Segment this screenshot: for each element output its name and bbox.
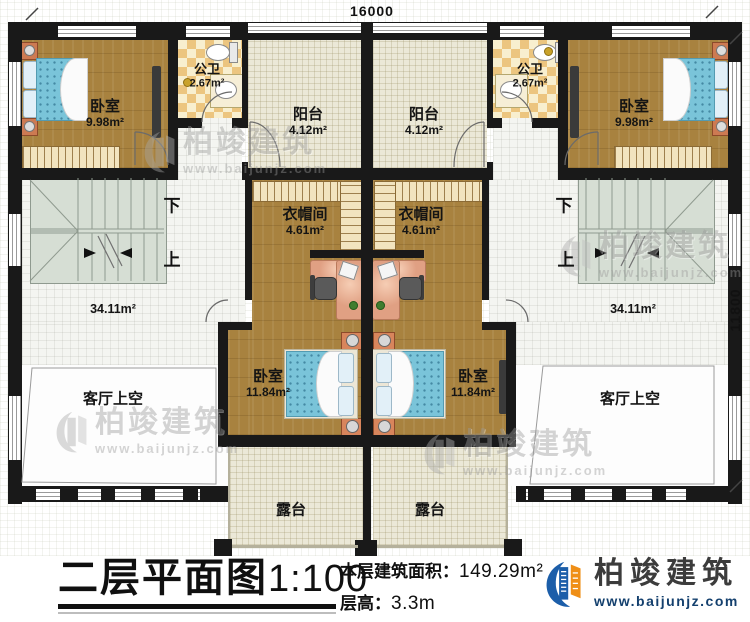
stair-down-label: 下 bbox=[164, 192, 181, 217]
pillow bbox=[376, 386, 392, 416]
room-label-terrace-left: 露台 bbox=[276, 503, 306, 520]
room-area: 9.98m² bbox=[615, 116, 653, 129]
bed-blanket bbox=[60, 58, 88, 121]
tv-cabinet bbox=[152, 66, 161, 138]
window bbox=[9, 62, 21, 126]
terrace-rail bbox=[377, 545, 504, 548]
stairs-left bbox=[30, 178, 167, 284]
room-name: 衣帽间 bbox=[398, 207, 443, 224]
terrace-column bbox=[355, 540, 377, 557]
wall-cloakL-south bbox=[310, 250, 361, 258]
cloak-hangers bbox=[252, 181, 342, 202]
floor-area-value: 149.29m² bbox=[459, 561, 543, 582]
room-area: 4.12m² bbox=[405, 124, 443, 137]
cloak-shelf bbox=[340, 181, 362, 251]
room-name: 客厅上空 bbox=[83, 392, 143, 409]
column bbox=[652, 487, 666, 501]
room-label-cloak-left: 衣帽间 4.61m² bbox=[282, 207, 327, 237]
room-label-terrace-right: 露台 bbox=[415, 503, 445, 520]
room-label-void-right: 客厅上空 bbox=[600, 392, 660, 409]
area-label-hall-left: 34.11m² bbox=[90, 302, 136, 316]
room-name: 客厅上空 bbox=[600, 392, 660, 409]
stool bbox=[341, 418, 363, 436]
dimension-height: 11800 bbox=[727, 288, 743, 331]
wall-cloakR-south bbox=[373, 250, 424, 258]
room-label-bedroom-topright: 卧室 9.98m² bbox=[615, 99, 653, 129]
room-label-bedroom-bottomleft: 卧室 11.84m² bbox=[246, 369, 290, 399]
room-name: 公卫 bbox=[513, 63, 548, 78]
balcony-right-floor bbox=[373, 30, 487, 168]
wall-bedroomTL-east bbox=[168, 40, 178, 180]
company-logo: 柏竣建筑 www.baijunjz.com bbox=[540, 558, 739, 610]
room-area: 4.61m² bbox=[398, 224, 443, 237]
floor-height-label: 层高： bbox=[340, 594, 391, 613]
window bbox=[729, 214, 741, 266]
cloak-hangers bbox=[394, 181, 483, 202]
wall-center bbox=[361, 22, 373, 447]
chair bbox=[314, 277, 337, 300]
column bbox=[612, 487, 626, 501]
area-label-hall-right: 34.11m² bbox=[610, 302, 656, 316]
wall-bedroomBR-east bbox=[506, 322, 516, 447]
floor-area-row: 本层建筑面积：149.29m² bbox=[340, 562, 543, 581]
title-underline-thin bbox=[58, 612, 336, 614]
room-label-balcony-right: 阳台 4.12m² bbox=[405, 107, 443, 137]
plan-title: 二层平面图1:100 bbox=[58, 558, 368, 598]
title-underline-thick bbox=[58, 604, 336, 609]
balcony-left-railing bbox=[248, 23, 361, 33]
wall-bathL-south-b bbox=[232, 118, 248, 128]
window bbox=[729, 396, 741, 460]
window bbox=[9, 214, 21, 266]
room-area: 34.11m² bbox=[90, 302, 136, 316]
room-area: 34.11m² bbox=[610, 302, 656, 316]
wardrobe-hangers bbox=[614, 146, 712, 169]
wall-cloakL-west bbox=[245, 180, 252, 300]
floor-height-row: 层高：3.3m bbox=[340, 594, 543, 613]
wall-bedroomTL-south bbox=[22, 168, 178, 180]
wardrobe-hangers bbox=[22, 146, 120, 169]
room-name: 衣帽间 bbox=[282, 207, 327, 224]
window bbox=[612, 26, 690, 37]
room-name: 阳台 bbox=[405, 107, 443, 124]
room-name: 卧室 bbox=[451, 369, 495, 386]
column bbox=[183, 487, 198, 501]
room-area: 11.84m² bbox=[451, 386, 495, 399]
room-label-bath-right: 公卫 2.67m² bbox=[513, 63, 548, 90]
balcony-right-railing bbox=[373, 23, 487, 33]
stairs-right bbox=[578, 178, 715, 284]
wall-cloakR-east bbox=[482, 180, 489, 300]
room-area: 2.67m² bbox=[190, 77, 225, 89]
terrace-left-floor bbox=[228, 447, 363, 545]
room-area: 4.61m² bbox=[282, 224, 327, 237]
company-logo-text: 柏竣建筑 www.baijunjz.com bbox=[594, 559, 739, 609]
plant-icon bbox=[376, 301, 385, 310]
room-name: 露台 bbox=[276, 503, 306, 520]
plan-info: 本层建筑面积：149.29m² 层高：3.3m bbox=[340, 562, 543, 613]
void-right-floor bbox=[506, 365, 728, 486]
room-name: 公卫 bbox=[190, 63, 225, 78]
stool bbox=[373, 418, 395, 436]
wall-center-terrace bbox=[363, 447, 371, 542]
wall-bedroomBR-south bbox=[373, 435, 506, 447]
floor-drain-icon bbox=[544, 47, 553, 56]
cloak-shelf bbox=[374, 181, 396, 251]
column bbox=[60, 487, 78, 501]
room-area: 2.67m² bbox=[513, 77, 548, 89]
stair-down-label: 下 bbox=[556, 192, 573, 217]
wall-balconyR-east-b bbox=[487, 162, 493, 180]
room-label-balcony-left: 阳台 4.12m² bbox=[289, 107, 327, 137]
tv-cabinet bbox=[570, 66, 579, 138]
room-name: 卧室 bbox=[246, 369, 290, 386]
plan-title-text: 二层平面图 bbox=[58, 556, 268, 600]
wall-bathL-south-a bbox=[168, 118, 202, 128]
wall-bedroomBL-south bbox=[228, 435, 361, 447]
room-label-bedroom-bottomright: 卧室 11.84m² bbox=[451, 369, 495, 399]
column bbox=[141, 487, 155, 501]
toilet-tank bbox=[229, 42, 238, 63]
title-bar: 二层平面图1:100 本层建筑面积：149.29m² 层高：3.3m 柏竣建筑 … bbox=[0, 556, 750, 622]
room-label-cloak-right: 衣帽间 4.61m² bbox=[398, 207, 443, 237]
hall-right-lower-floor bbox=[516, 322, 728, 365]
floorplan-canvas: 柏竣建筑 www.baijunjz.com 柏竣建筑 www.baijunjz.… bbox=[0, 0, 750, 622]
window bbox=[186, 26, 230, 37]
room-label-bath-left: 公卫 2.67m² bbox=[190, 63, 225, 90]
room-name: 阳台 bbox=[289, 107, 327, 124]
terrace-column bbox=[504, 539, 522, 556]
toilet-icon bbox=[206, 44, 230, 61]
column bbox=[571, 487, 585, 501]
plant-icon bbox=[349, 301, 358, 310]
pillow bbox=[713, 61, 728, 89]
company-url: www.baijunjz.com bbox=[594, 593, 739, 609]
dimension-width: 16000 bbox=[350, 3, 394, 19]
room-name: 卧室 bbox=[615, 99, 653, 116]
wall-balconyR-south bbox=[373, 168, 487, 180]
terrace-right-floor bbox=[373, 447, 508, 545]
room-label-bedroom-topleft: 卧室 9.98m² bbox=[86, 99, 124, 129]
wall-bedroomTR-west bbox=[558, 40, 568, 180]
pillow bbox=[338, 386, 354, 416]
room-area: 4.12m² bbox=[289, 124, 327, 137]
wall-balconyL-west-a bbox=[242, 22, 248, 122]
wall-bathR-south-a bbox=[487, 118, 502, 128]
wall-bedroomTR-south bbox=[568, 168, 728, 180]
void-left-floor bbox=[22, 365, 228, 486]
terrace-rail bbox=[232, 545, 358, 548]
pillow bbox=[376, 353, 392, 383]
pillow bbox=[338, 353, 354, 383]
wall-balconyR-east-a bbox=[487, 22, 493, 122]
company-logo-icon bbox=[540, 558, 586, 610]
wall-balconyL-south bbox=[248, 168, 361, 180]
floor-area-label: 本层建筑面积： bbox=[340, 562, 459, 581]
room-area: 11.84m² bbox=[246, 386, 290, 399]
stair-up-label: 上 bbox=[558, 246, 575, 271]
column bbox=[528, 487, 544, 501]
stair-up-label: 上 bbox=[164, 246, 181, 271]
column bbox=[101, 487, 115, 501]
wall-bedroomBL-west bbox=[218, 322, 228, 447]
room-name: 露台 bbox=[415, 503, 445, 520]
company-name: 柏竣建筑 bbox=[594, 559, 739, 589]
chair bbox=[399, 277, 422, 300]
room-area: 9.98m² bbox=[86, 116, 124, 129]
room-label-void-left: 客厅上空 bbox=[83, 392, 143, 409]
pillow bbox=[713, 90, 728, 118]
room-name: 卧室 bbox=[86, 99, 124, 116]
window bbox=[500, 26, 544, 37]
stool bbox=[341, 332, 363, 350]
window bbox=[58, 26, 136, 37]
terrace-column bbox=[214, 539, 232, 556]
floor-height-value: 3.3m bbox=[391, 593, 435, 614]
hall-left-lower-floor bbox=[22, 322, 218, 365]
stool bbox=[373, 332, 395, 350]
window bbox=[729, 62, 741, 126]
balcony-left-floor bbox=[248, 30, 361, 168]
window bbox=[9, 396, 21, 460]
